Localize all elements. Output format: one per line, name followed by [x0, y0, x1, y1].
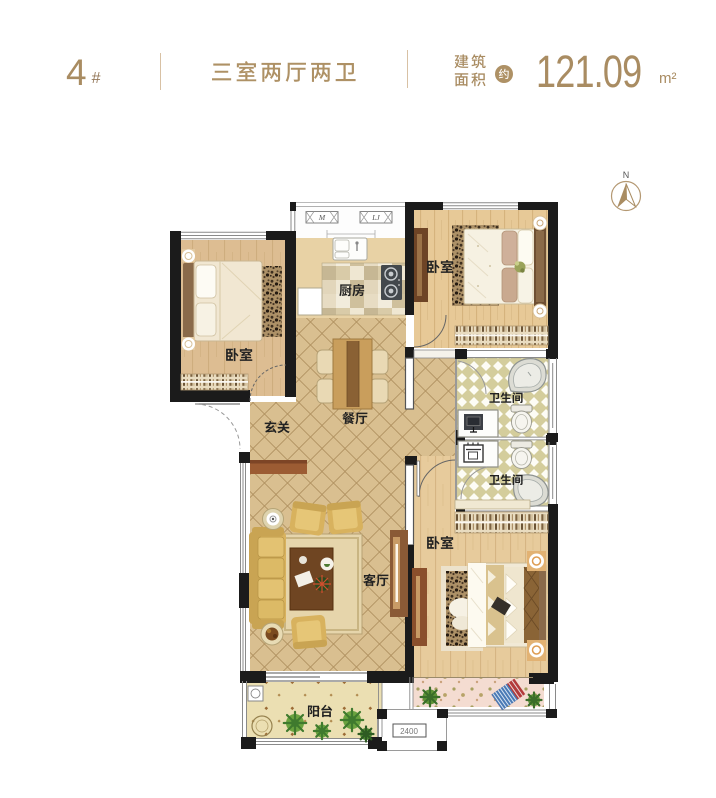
svg-text:M: M [318, 213, 326, 222]
svg-text:LJ: LJ [371, 213, 380, 222]
svg-text:N: N [623, 170, 630, 180]
svg-text:2400: 2400 [400, 727, 418, 736]
